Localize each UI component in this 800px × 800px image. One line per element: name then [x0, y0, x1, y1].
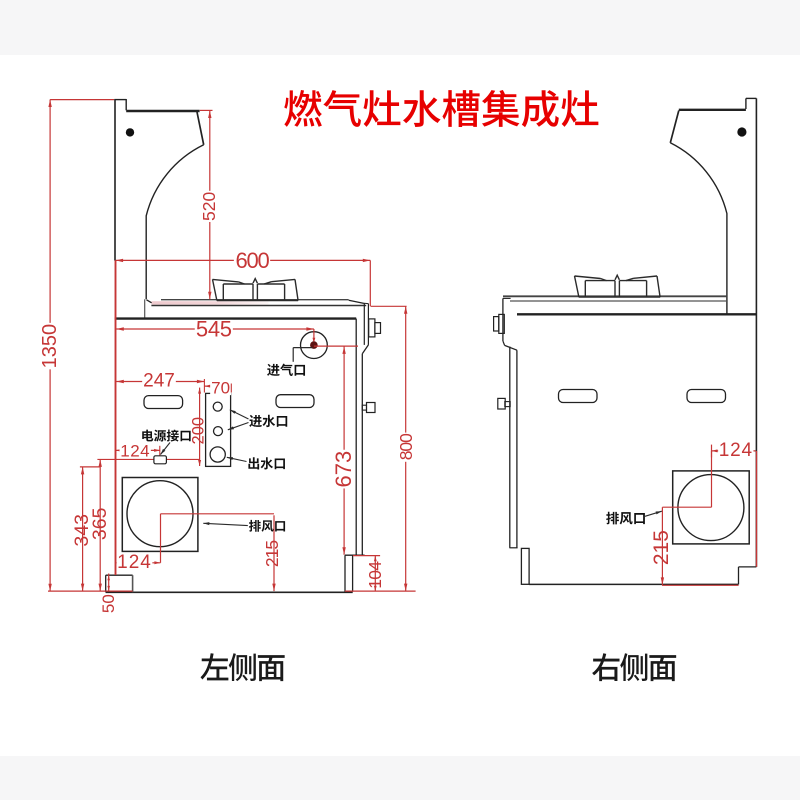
svg-text:124: 124 [117, 552, 152, 573]
svg-text:800: 800 [396, 433, 416, 460]
svg-text:365: 365 [89, 507, 111, 540]
svg-text:124: 124 [719, 440, 753, 461]
svg-text:50: 50 [99, 594, 118, 613]
svg-text:70: 70 [211, 379, 230, 398]
svg-text:545: 545 [196, 317, 232, 342]
svg-text:104: 104 [365, 561, 385, 589]
svg-text:520: 520 [199, 192, 219, 221]
svg-text:1350: 1350 [39, 324, 61, 369]
svg-text:247: 247 [143, 370, 175, 391]
svg-text:215: 215 [650, 530, 673, 565]
svg-text:215: 215 [262, 541, 282, 567]
svg-text:600: 600 [235, 248, 269, 273]
svg-text:200: 200 [190, 417, 208, 445]
svg-text:124: 124 [120, 441, 150, 460]
svg-text:673: 673 [331, 451, 356, 488]
